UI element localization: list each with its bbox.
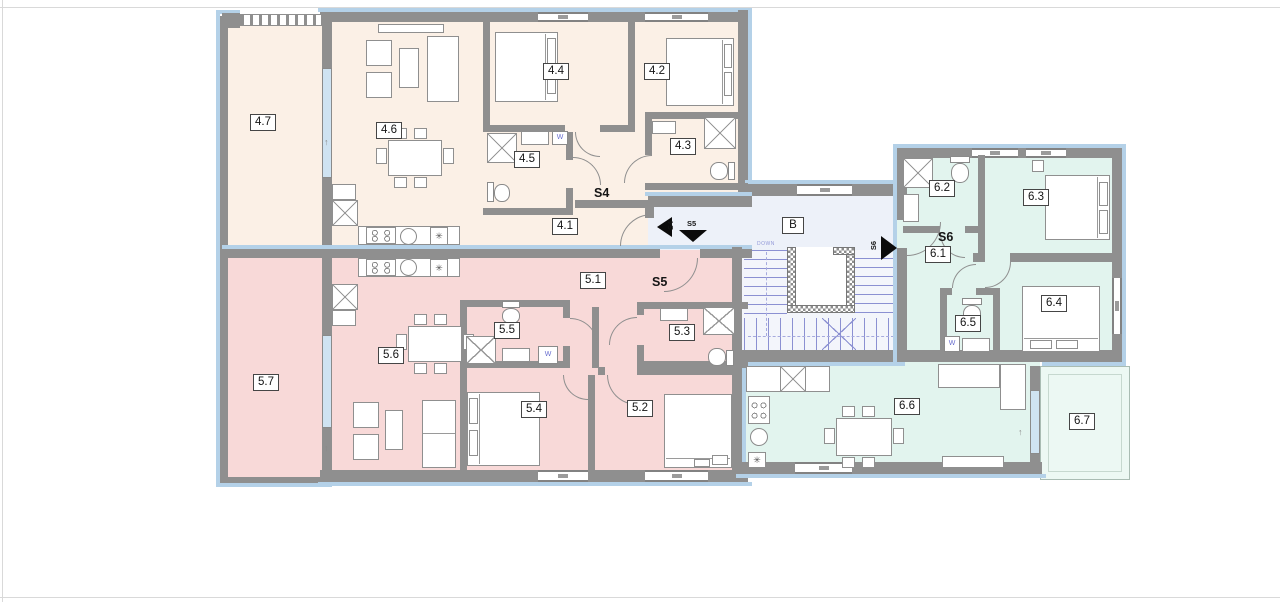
stove-icon (366, 227, 396, 244)
wall (483, 20, 490, 132)
stair-void-wall-hook (833, 247, 855, 255)
sofa-icon (427, 36, 459, 102)
terrace-railing (240, 14, 322, 26)
exterior-wall-band (736, 474, 1046, 478)
chair-icon (414, 314, 427, 325)
tv-cabinet-icon (422, 400, 456, 468)
corner-sink-icon (780, 366, 806, 392)
wall (852, 184, 897, 196)
armchair-icon (366, 40, 392, 66)
sink-icon (903, 194, 919, 222)
sideboard-icon (378, 24, 444, 33)
chair-icon (862, 406, 875, 417)
dining-table-icon (388, 140, 442, 176)
unit-label-s5: S5 (652, 275, 667, 289)
toilet-icon (710, 162, 728, 180)
room-label-6-6: 6.6 (894, 398, 920, 415)
nav-arrow-s5-label: S5 (687, 219, 696, 228)
armchair-icon (353, 434, 379, 460)
pillow-icon (469, 430, 478, 456)
wall (645, 183, 748, 190)
exterior-wall-band (216, 483, 332, 487)
room-label-5-3: 5.3 (669, 324, 695, 341)
room-label-5-6: 5.6 (378, 347, 404, 364)
pillow-icon (1030, 340, 1052, 349)
coffee-table-icon (385, 410, 403, 450)
unit-label-s6: S6 (938, 230, 953, 244)
chair-icon (443, 148, 454, 164)
wall (978, 155, 985, 233)
nightstand-icon (1032, 160, 1044, 172)
stairs-walkline-v (766, 252, 767, 336)
sink-icon (521, 131, 549, 145)
window (538, 470, 588, 482)
appliance-icon: ✳ (748, 452, 766, 468)
wall (1030, 366, 1040, 390)
pillow-icon (547, 38, 556, 64)
wall (738, 10, 748, 196)
appliance-icon: ✳ (430, 259, 448, 277)
wall (588, 12, 645, 22)
room-label-4-4: 4.4 (543, 63, 569, 80)
stair-void-wall-left (787, 247, 796, 313)
pillow-icon (1099, 182, 1108, 206)
pillow-icon (712, 455, 728, 465)
stair-void (796, 247, 846, 305)
exterior-wall-band (1122, 144, 1126, 366)
wall (897, 248, 907, 350)
page-edge-bottom (0, 597, 1280, 598)
wall (1010, 253, 1112, 262)
dining-table-icon (836, 418, 892, 456)
bed-headboard-line (479, 394, 480, 464)
stairs-break-cross (822, 318, 856, 350)
toilet-tank-icon (502, 301, 520, 308)
wall (648, 196, 752, 207)
chair-icon (893, 428, 904, 444)
wall (637, 309, 644, 315)
room-label-6-2: 6.2 (929, 180, 955, 197)
room-label-4-2: 4.2 (644, 63, 670, 80)
stairs-walkline-h (748, 336, 894, 337)
wall (588, 375, 595, 470)
pillow-icon (724, 44, 732, 68)
room-label-6-4: 6.4 (1041, 295, 1067, 312)
shower-icon (703, 307, 735, 335)
chair-icon (414, 128, 427, 139)
room-label-4-6: 4.6 (376, 122, 402, 139)
wall (600, 125, 635, 132)
wall (598, 367, 605, 375)
shower-icon (466, 336, 496, 364)
nav-arrow-s5-icon (679, 230, 707, 242)
room-label-4-3: 4.3 (670, 138, 696, 155)
terrace-5-7-fill (222, 250, 328, 479)
pillow-icon (1099, 210, 1108, 234)
nav-arrow-s6-label: S6 (869, 241, 878, 250)
chair-icon (434, 314, 447, 325)
chair-icon (414, 363, 427, 374)
wall (320, 12, 538, 22)
dining-table-icon (408, 326, 462, 362)
corridor-label: B (782, 217, 804, 234)
room-label-5-4: 5.4 (521, 401, 547, 418)
wall (993, 288, 1000, 356)
wall (645, 119, 652, 155)
window (797, 184, 852, 196)
window (645, 470, 708, 482)
wall (940, 288, 952, 295)
toilet-tank-icon (726, 350, 734, 366)
sink-icon (400, 228, 417, 245)
chair-icon (394, 177, 407, 188)
sink-icon (750, 428, 768, 446)
corner-sink-icon (332, 284, 358, 310)
pillow-icon (469, 398, 478, 424)
toilet-tank-icon (728, 162, 735, 180)
floor-plan: DOWN (0, 0, 1280, 602)
sink-icon (962, 338, 990, 352)
window (1026, 148, 1066, 158)
wall (628, 20, 635, 125)
sink-icon (652, 121, 676, 134)
washing-machine-icon: W (538, 346, 558, 364)
balcony-door-window (1030, 390, 1040, 454)
corner-sink-icon (332, 200, 358, 226)
room-label-6-3: 6.3 (1023, 189, 1049, 206)
sink-icon (502, 348, 530, 362)
terrace-door-window (322, 335, 332, 428)
room-label-6-5: 6.5 (955, 315, 981, 332)
terrace-4-7-fill (222, 16, 328, 247)
nav-arrow-s6-icon (881, 236, 897, 260)
wall (222, 249, 660, 258)
chair-icon (376, 148, 387, 164)
sofa-corner-icon (1000, 364, 1026, 410)
room-label-6-1: 6.1 (925, 246, 951, 263)
pillow-icon (1056, 340, 1078, 349)
wall (563, 300, 570, 318)
toilet-icon (494, 184, 510, 202)
wall (483, 208, 573, 215)
exterior-wall-band (748, 8, 752, 196)
wall (1018, 148, 1026, 158)
room-label-5-5: 5.5 (494, 322, 520, 339)
room-label-5-7: 5.7 (253, 374, 279, 391)
wall (973, 253, 985, 262)
toilet-tank-icon (487, 182, 494, 202)
chair-icon (842, 406, 855, 417)
wall (700, 249, 752, 258)
nav-arrow-s4-label: S4 (666, 221, 675, 230)
unit-label-s4: S4 (594, 186, 609, 200)
wall (322, 178, 332, 250)
stove-icon (748, 396, 770, 424)
stair-void-wall-bottom (787, 305, 855, 313)
wall (460, 368, 467, 470)
stairs-right-flight (855, 258, 895, 318)
chair-icon (434, 363, 447, 374)
wall (1030, 454, 1040, 472)
tv-bench-icon (942, 456, 1004, 468)
room-label-5-1: 5.1 (580, 272, 606, 289)
armchair-icon (366, 72, 392, 98)
washing-machine-icon: W (552, 131, 568, 145)
window (645, 12, 708, 22)
stair-void-wall-right (846, 247, 855, 313)
cabinet-shelf-line (423, 433, 455, 434)
threshold-arrow: ↑ (1018, 428, 1023, 437)
toilet-tank-icon (962, 298, 982, 305)
threshold-arrow: ↑ (324, 444, 329, 453)
wall (745, 184, 797, 196)
terrace-door-window (322, 68, 332, 178)
shower-icon (704, 117, 736, 149)
kitchen-cabinet (332, 310, 356, 326)
room-label-5-2: 5.2 (627, 400, 653, 417)
bed-headboard-line (1024, 338, 1098, 339)
room-label-4-5: 4.5 (514, 151, 540, 168)
sofa-icon (938, 364, 1000, 388)
room-label-4-1: 4.1 (552, 218, 578, 235)
chair-icon (862, 457, 875, 468)
wall (588, 470, 645, 482)
chair-icon (414, 177, 427, 188)
pillow-icon (694, 459, 710, 467)
shower-icon (487, 133, 517, 163)
wall (322, 258, 332, 335)
wall (1112, 148, 1122, 278)
room-label-4-7: 4.7 (250, 114, 276, 131)
wall (575, 200, 648, 208)
window (538, 12, 588, 22)
stove-icon (366, 259, 396, 276)
bed-headboard-line (722, 40, 723, 104)
toilet-icon (708, 348, 726, 366)
exterior-wall-band (318, 482, 752, 486)
threshold-arrow: ↑ (324, 138, 329, 147)
washing-machine-icon: W (944, 336, 960, 352)
armchair-icon (353, 402, 379, 428)
wall (637, 367, 735, 375)
appliance-icon: ✳ (430, 227, 448, 245)
bed-headboard-line (1097, 177, 1098, 238)
kitchen-cabinet (332, 184, 356, 200)
wall (320, 470, 538, 482)
page-edge-left (2, 0, 3, 602)
chair-icon (824, 428, 835, 444)
chair-icon (842, 457, 855, 468)
room-label-6-7: 6.7 (1069, 413, 1095, 430)
window (1112, 278, 1122, 334)
pillow-icon (724, 72, 732, 96)
coffee-table-icon (399, 48, 419, 88)
exterior-wall-band (1042, 362, 1126, 366)
toilet-tank-icon (950, 156, 970, 163)
stairs-down-label: DOWN (757, 242, 775, 247)
sink-icon (660, 308, 688, 321)
wall (322, 12, 332, 68)
sink-icon (400, 259, 417, 276)
